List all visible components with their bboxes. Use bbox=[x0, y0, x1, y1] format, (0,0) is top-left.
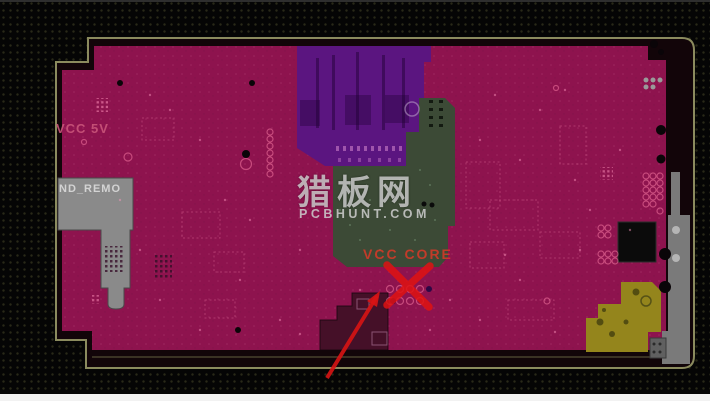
watermark-site-domain: PCBHUNT.COM bbox=[299, 207, 430, 221]
net-label-vcc-5v: VCC 5V bbox=[56, 121, 109, 136]
pcb-viewer-canvas: VCC 5V ND_REMO VCC CORE 猎板网 PCBHUNT.COM bbox=[0, 0, 710, 401]
gnd-region-pad-grid bbox=[105, 246, 123, 272]
net-label-vcc-core: VCC CORE bbox=[363, 246, 453, 262]
component-block bbox=[618, 222, 656, 262]
net-label-gnd-remove: ND_REMO bbox=[59, 183, 121, 195]
connector-block bbox=[650, 338, 666, 358]
top-border-line bbox=[0, 0, 710, 2]
image-letterbox-strip bbox=[0, 394, 710, 401]
